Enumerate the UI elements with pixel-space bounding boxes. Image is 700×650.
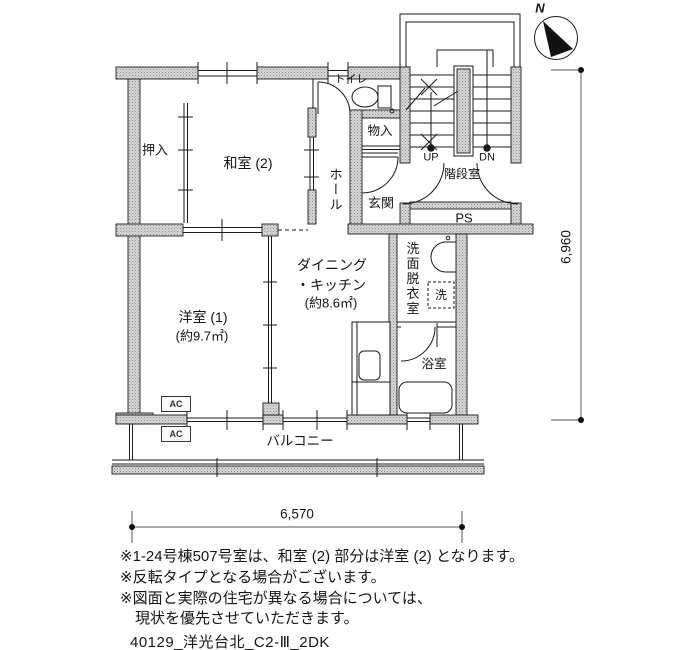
ac-label-1: AC xyxy=(170,399,183,409)
ac-unit-box-2: AC xyxy=(161,426,191,442)
partition-yoshitsu-dk xyxy=(263,236,277,403)
ac-label-2: AC xyxy=(170,429,183,439)
room-label-monoire: 物入 xyxy=(367,125,392,138)
north-arrow-icon xyxy=(535,17,578,60)
room-label-senmen: 洗面脱衣室 xyxy=(406,242,419,317)
room-area-yoshitsu1: (約9.7㎡) xyxy=(176,330,229,343)
floor-plan: N 押入 和室 (2) トイレ 物入 ホール 玄関 UP DN 階段室 PS 洋… xyxy=(0,0,700,650)
plan-id: 40129_洋光台北_C2-Ⅲ_2DK xyxy=(130,631,330,650)
note-line-2: ※反転タイプとなる場合がございます。 xyxy=(120,566,386,587)
dimension-vertical: 6,960 xyxy=(559,230,573,264)
window-bottom-1 xyxy=(187,410,263,430)
stair-up-label: UP xyxy=(423,153,438,164)
bathtub-icon xyxy=(399,382,452,413)
room-area-dk: (約8.6㎡) xyxy=(305,297,358,310)
room-label-stairwell: 階段室 xyxy=(444,168,480,180)
room-label-yoshitsu1: 洋室 (1) xyxy=(179,310,228,324)
room-label-dk-line1: ダイニング xyxy=(297,258,367,272)
room-label-bathroom: 浴室 xyxy=(421,358,446,371)
room-label-toilet: トイレ xyxy=(335,75,368,86)
stair-dn-label: DN xyxy=(479,153,495,164)
room-label-genkan: 玄関 xyxy=(368,197,394,210)
room-label-dk-line2: ・キッチン xyxy=(296,278,366,292)
note-line-1: ※1-24号棟507号室は、和室 (2) 部分は洋室 (2) となります。 xyxy=(120,545,524,566)
ac-unit-box-1: AC xyxy=(161,396,191,412)
window-top-1 xyxy=(198,62,257,84)
toilet-door-arc xyxy=(318,82,350,114)
stair-route-lines xyxy=(406,50,490,151)
room-label-ps: PS xyxy=(455,212,472,225)
bath-walls xyxy=(397,322,456,361)
dimension-horizontal: 6,570 xyxy=(280,507,314,521)
washbasin-icon xyxy=(431,236,456,272)
toilet-icon xyxy=(352,86,394,113)
laundry-label: 洗 xyxy=(435,289,447,301)
genkan-door-arc xyxy=(362,153,398,193)
fusuma-oshiire xyxy=(178,103,193,223)
room-label-balcony: バルコニー xyxy=(266,434,333,448)
room-label-oshiire: 押入 xyxy=(142,144,168,157)
monoire-door xyxy=(362,146,400,150)
north-label: N xyxy=(535,2,544,15)
note-line-3: ※図面と実際の住宅が異なる場合については、 xyxy=(120,587,432,608)
room-label-washitsu2: 和室 (2) xyxy=(224,156,273,170)
kitchen-counter xyxy=(352,322,390,415)
room-label-hall: ホール xyxy=(329,168,342,213)
sliding-door-washitsu-dk xyxy=(183,219,262,241)
window-bottom-2 xyxy=(283,410,347,430)
note-line-4: 現状を優先させていただきます。 xyxy=(120,607,359,628)
